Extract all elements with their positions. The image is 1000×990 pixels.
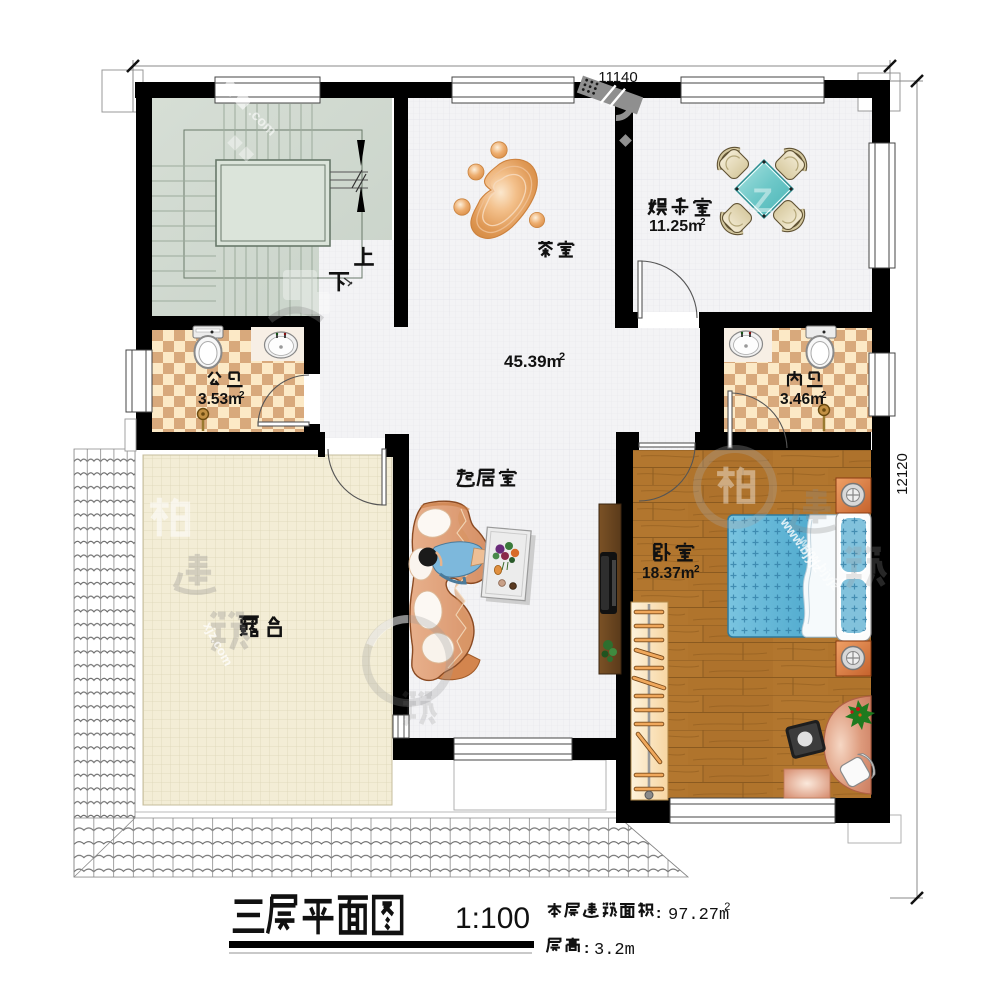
svg-text:3.53m: 3.53m [198, 391, 242, 408]
svg-text:2: 2 [700, 217, 706, 228]
svg-text:2: 2 [821, 390, 827, 401]
svg-text:3.2m: 3.2m [594, 941, 635, 960]
svg-text::: : [584, 940, 589, 957]
svg-text:Z: Z [752, 182, 773, 220]
svg-text::: : [656, 905, 661, 922]
svg-text:45.39m: 45.39m [504, 352, 562, 371]
svg-text:12120: 12120 [894, 453, 911, 495]
svg-text:1:100: 1:100 [455, 902, 530, 935]
svg-text:2: 2 [239, 390, 245, 401]
svg-text:18.37m: 18.37m [642, 565, 695, 582]
svg-text:11.25m: 11.25m [649, 218, 702, 235]
svg-text:2: 2 [694, 564, 700, 575]
svg-text:97.27m: 97.27m [668, 906, 729, 925]
svg-text:2: 2 [559, 351, 565, 363]
svg-text:2: 2 [724, 902, 731, 914]
svg-text:3.46m: 3.46m [780, 391, 824, 408]
